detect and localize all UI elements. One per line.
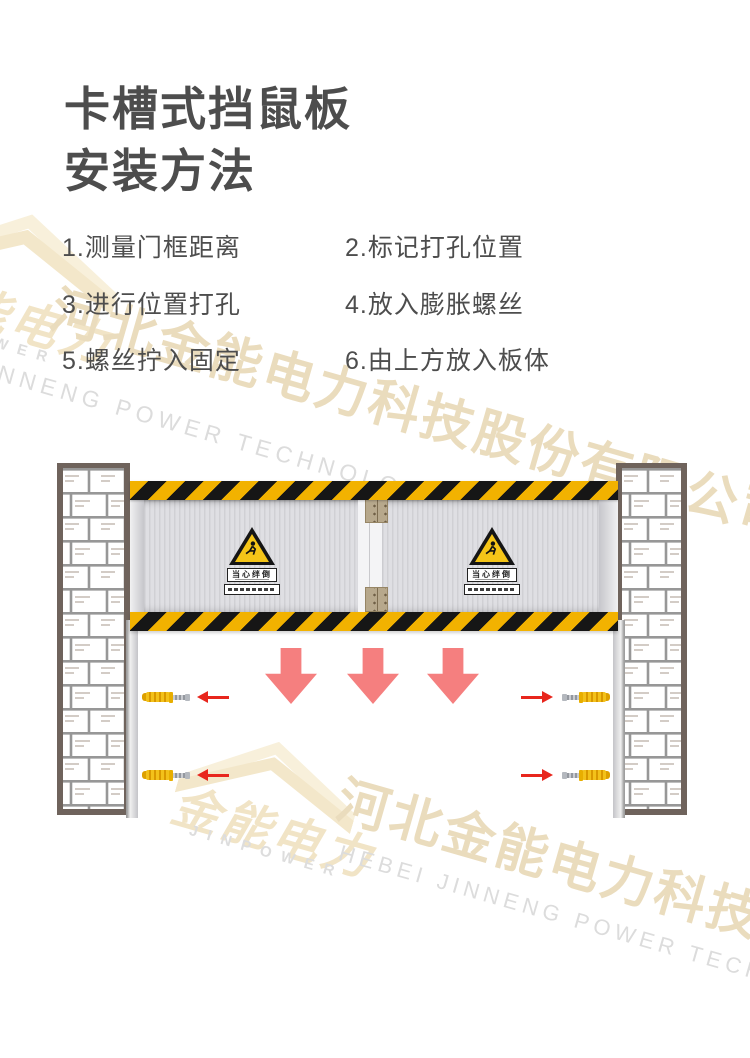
frame-channel-right: [613, 620, 625, 818]
tripping-person-icon: [241, 539, 263, 561]
step-1: 1.测量门框距离: [62, 228, 241, 264]
warning-triangle-icon: [469, 527, 515, 565]
step-6: 6.由上方放入板体: [345, 341, 550, 377]
page-title-line2: 安装方法: [64, 140, 352, 202]
hazard-tape-bottom: [130, 612, 618, 631]
warning-sign-left: 当心绊倒: [224, 527, 280, 595]
step-3: 3.进行位置打孔: [62, 285, 241, 321]
screw-direction-arrow-icon: [197, 691, 229, 703]
expansion-screw-icon: [142, 769, 192, 781]
step-4: 4.放入膨胀螺丝: [345, 285, 524, 321]
right-brick-wall: [616, 463, 687, 815]
hazard-tape-top: [130, 481, 618, 500]
board-end-rail-right: [599, 500, 618, 612]
screw-direction-arrow-icon: [521, 769, 553, 781]
down-arrow-icon: [427, 648, 479, 704]
screw-direction-arrow-icon: [521, 691, 553, 703]
step-2: 2.标记打孔位置: [345, 228, 524, 264]
page-title-line1: 卡槽式挡鼠板: [64, 78, 352, 140]
step-5: 5.螺丝拧入固定: [62, 341, 241, 377]
expansion-screw-icon: [142, 691, 192, 703]
product-instruction-image: 卡槽式挡鼠板 安装方法 1.测量门框距离 2.标记打孔位置 3.进行位置打孔 4…: [0, 0, 750, 896]
down-arrow-icon: [265, 648, 317, 704]
expansion-screw-icon: [560, 691, 610, 703]
tripping-person-icon: [481, 539, 503, 561]
hinge-bottom-icon: [365, 587, 388, 612]
frame-channel-left: [126, 620, 138, 818]
down-arrow-icon: [347, 648, 399, 704]
warning-sign-label: 当心绊倒: [227, 568, 277, 582]
left-brick-wall: [57, 463, 130, 815]
screw-direction-arrow-icon: [197, 769, 229, 781]
brick-texture: [622, 468, 681, 809]
board-end-rail-left: [130, 500, 144, 612]
warning-triangle-icon: [229, 527, 275, 565]
warning-sign-right: 当心绊倒: [464, 527, 520, 595]
hinge-top-icon: [365, 498, 388, 523]
brick-texture: [63, 468, 124, 809]
warning-sign-label: 当心绊倒: [467, 568, 517, 582]
page-title: 卡槽式挡鼠板 安装方法: [64, 78, 352, 202]
warning-sign-subtext: [464, 584, 520, 595]
expansion-screw-icon: [560, 769, 610, 781]
warning-sign-subtext: [224, 584, 280, 595]
